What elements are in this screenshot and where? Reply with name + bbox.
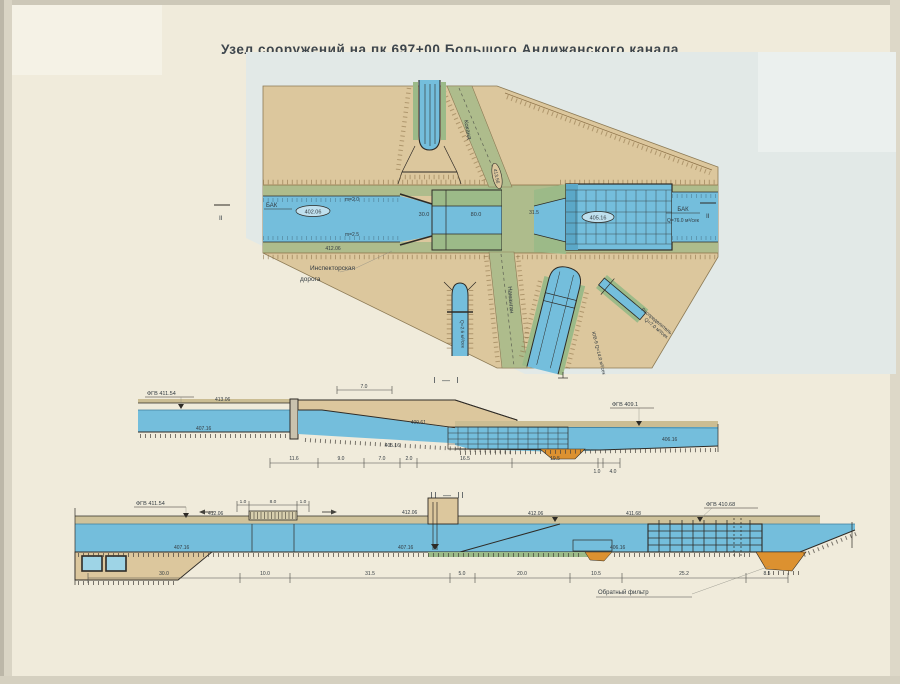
downstream-water	[455, 427, 718, 452]
main-canal-right	[672, 192, 718, 242]
level-413: 413.06	[215, 397, 231, 403]
fgv-left-label: ФГВ 411.54	[147, 391, 176, 397]
dim-chamber: 80.0	[471, 212, 482, 218]
basin-level-oval: 405.16	[590, 216, 607, 222]
fgv-left-marker	[178, 404, 184, 409]
section-i-title: I — I	[434, 376, 461, 385]
lv-411-68: 411.68	[626, 511, 641, 517]
scanned-drawing-page: Узел сооружений на пк 697+00 Большого Ан…	[0, 0, 900, 684]
light-corner	[758, 52, 896, 152]
dim-value: 11.6	[289, 456, 299, 462]
dim-value: 30.0	[159, 571, 169, 577]
flume-chamber	[432, 187, 502, 252]
dim-value: 19.5	[550, 456, 560, 462]
level-405-16: 405.16	[385, 443, 401, 449]
upstream-water	[138, 410, 290, 432]
filter-patch-1	[540, 449, 585, 459]
road-level-label: 412.06	[325, 246, 341, 252]
lv-406-16: 406.16	[610, 545, 626, 551]
dim-flume: 30.0	[419, 212, 430, 218]
marker-label: II	[219, 215, 223, 222]
level-409-61: 409.61	[411, 420, 427, 426]
canal-level-oval: 402.06	[305, 210, 322, 216]
slope-label-bottom: m=2.5	[345, 232, 359, 238]
fgv-left-label-2: ФГВ 411.54	[136, 501, 165, 507]
dim-value: 4.0	[610, 469, 617, 475]
dim-value: 1.0	[300, 499, 307, 505]
dim-value: 10.0	[260, 571, 270, 577]
filter-patch-2	[585, 552, 612, 561]
dim-value: 9.0	[338, 456, 345, 462]
bak-left-label: БАК	[266, 203, 278, 209]
lv-412-b: 412.06	[402, 510, 418, 516]
dim-value: 7.0	[379, 456, 386, 462]
inspection-road-label-1: Инспекторская	[310, 265, 356, 272]
lv-407-b: 407.16	[398, 545, 414, 551]
section-ii-dims: 30.0 10.0 31.5 5.0 20.0 10.5 25.2 8.5	[88, 571, 788, 583]
dim-value: 8.5	[764, 571, 771, 577]
bak-right-label: БАК	[677, 207, 689, 213]
dim-value: 20.0	[517, 571, 527, 577]
section-i: I — I ФГВ 411.54 413.06 407.16	[138, 376, 718, 475]
fgv-right-label: ФГВ 409.1	[612, 402, 638, 408]
dim-value: 10.5	[591, 571, 601, 577]
drawing-canvas: II II БАК 402.06 m=2.0 m=2.5 412.06 30.0…	[0, 0, 900, 684]
flow-arrow-left	[199, 510, 205, 515]
branch-left-label: Q=2.6 м³/сек	[459, 320, 466, 349]
flow-arrow-right	[331, 510, 337, 515]
marker-label: II	[706, 213, 710, 220]
section-ii: II — II ФГВ 411.54 412.06 407.16	[75, 491, 856, 597]
dim-value: 25.2	[679, 571, 689, 577]
dim-value: 1.0	[240, 499, 247, 505]
section-marker-left: II	[214, 205, 230, 222]
dim-value: 1.0	[594, 469, 601, 475]
fgv-right-label-2: ФГВ 410.68	[706, 502, 735, 508]
dim-7: 7.0	[361, 384, 368, 390]
dim-value: 8.0	[270, 499, 277, 505]
outlet-transition	[534, 184, 566, 254]
dim-value: 2.0	[406, 456, 413, 462]
dim-value: 5.0	[459, 571, 466, 577]
filter-callout: Обратный фильтр	[598, 589, 649, 596]
level-407-left: 407.16	[196, 426, 212, 432]
right-berm	[455, 421, 718, 427]
left-berm	[138, 399, 290, 403]
slope-label-top: m=2.0	[345, 197, 359, 203]
level-406-16: 406.16	[662, 437, 678, 443]
inspection-road-label-2: дорога	[300, 276, 321, 283]
main-canal-left	[263, 196, 400, 242]
bak-right-flow: Q=76.0 м³/сек	[667, 218, 700, 224]
lv-412-c: 412.06	[528, 511, 544, 517]
dim-value: 16.5	[460, 456, 470, 462]
dim-value: 31.5	[365, 571, 375, 577]
plan-view: II II БАК 402.06 m=2.0 m=2.5 412.06 30.0…	[214, 52, 896, 378]
dim-transition: 31.5	[529, 210, 539, 216]
lv-407-a: 407.16	[174, 545, 190, 551]
